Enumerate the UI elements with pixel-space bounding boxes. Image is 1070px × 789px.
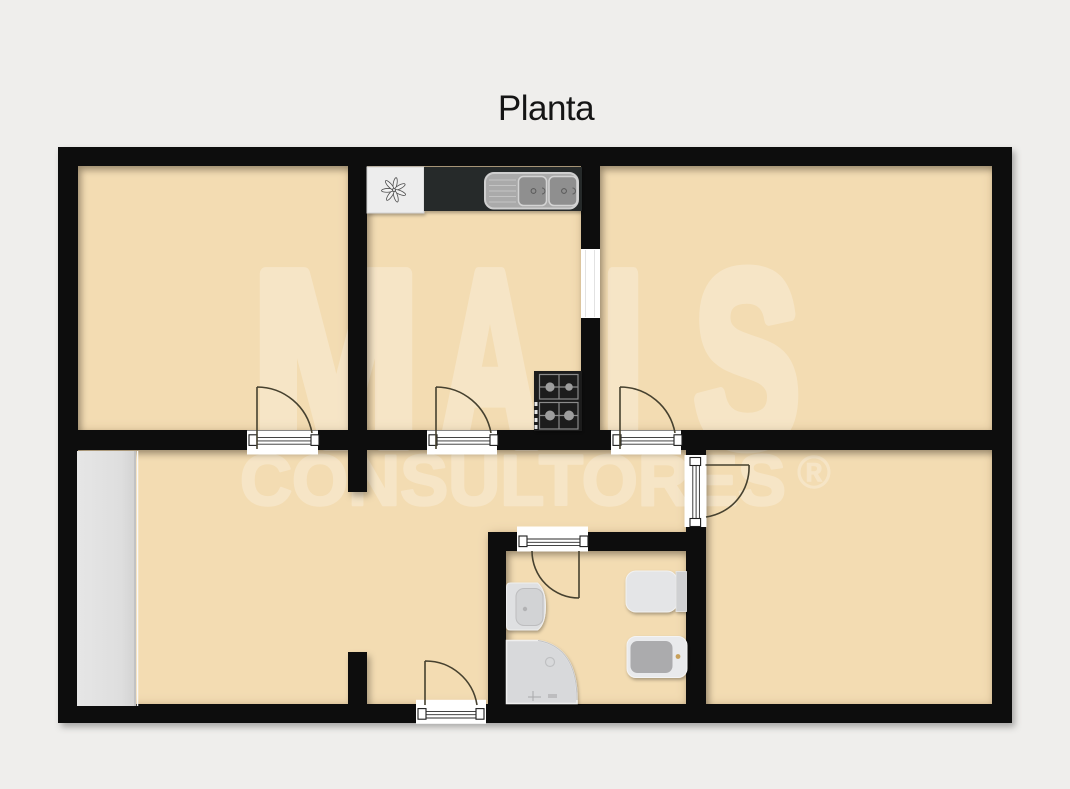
svg-text:®: ®: [797, 446, 831, 498]
svg-text:Planta: Planta: [498, 89, 595, 128]
